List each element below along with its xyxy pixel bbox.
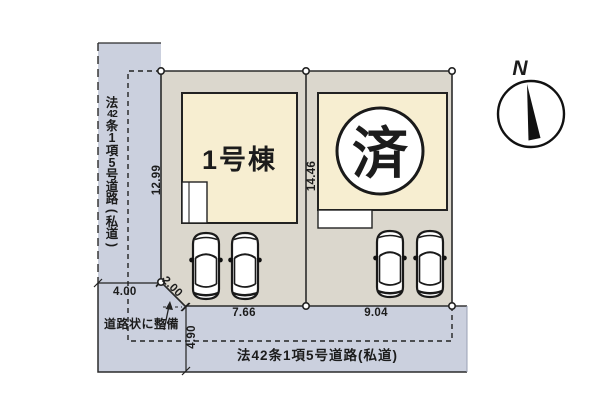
sold-stamp-label: 済 xyxy=(337,106,423,192)
car-icon xyxy=(373,231,407,297)
building-2-porch xyxy=(318,210,372,228)
car-icon xyxy=(189,233,223,299)
dim-center-boundary: 14.46 xyxy=(306,154,318,198)
compass-icon xyxy=(498,81,564,147)
unit1-label: 1号棟 xyxy=(182,93,297,221)
site-plan: 法42条1項5号道路(私道) 12.99 14.46 1号棟 済 4.00 2.… xyxy=(0,0,600,408)
dim-west-road-width: 4.00 xyxy=(113,286,137,298)
road-maintained-note: 道路状に整備 xyxy=(104,315,179,332)
car-icon xyxy=(413,231,447,297)
dim-south-road-width: 4.90 xyxy=(186,315,198,359)
car-icon xyxy=(228,233,262,299)
dim-plot1-frontage: 7.66 xyxy=(225,307,263,319)
south-road-label: 法42条1項5号道路(私道) xyxy=(237,344,398,364)
compass-north-label: N xyxy=(505,57,535,81)
dim-plot2-frontage: 9.04 xyxy=(357,307,395,319)
west-road-label: 法42条1項5号道路(私道) xyxy=(103,97,121,250)
dim-west-boundary: 12.99 xyxy=(151,158,163,202)
